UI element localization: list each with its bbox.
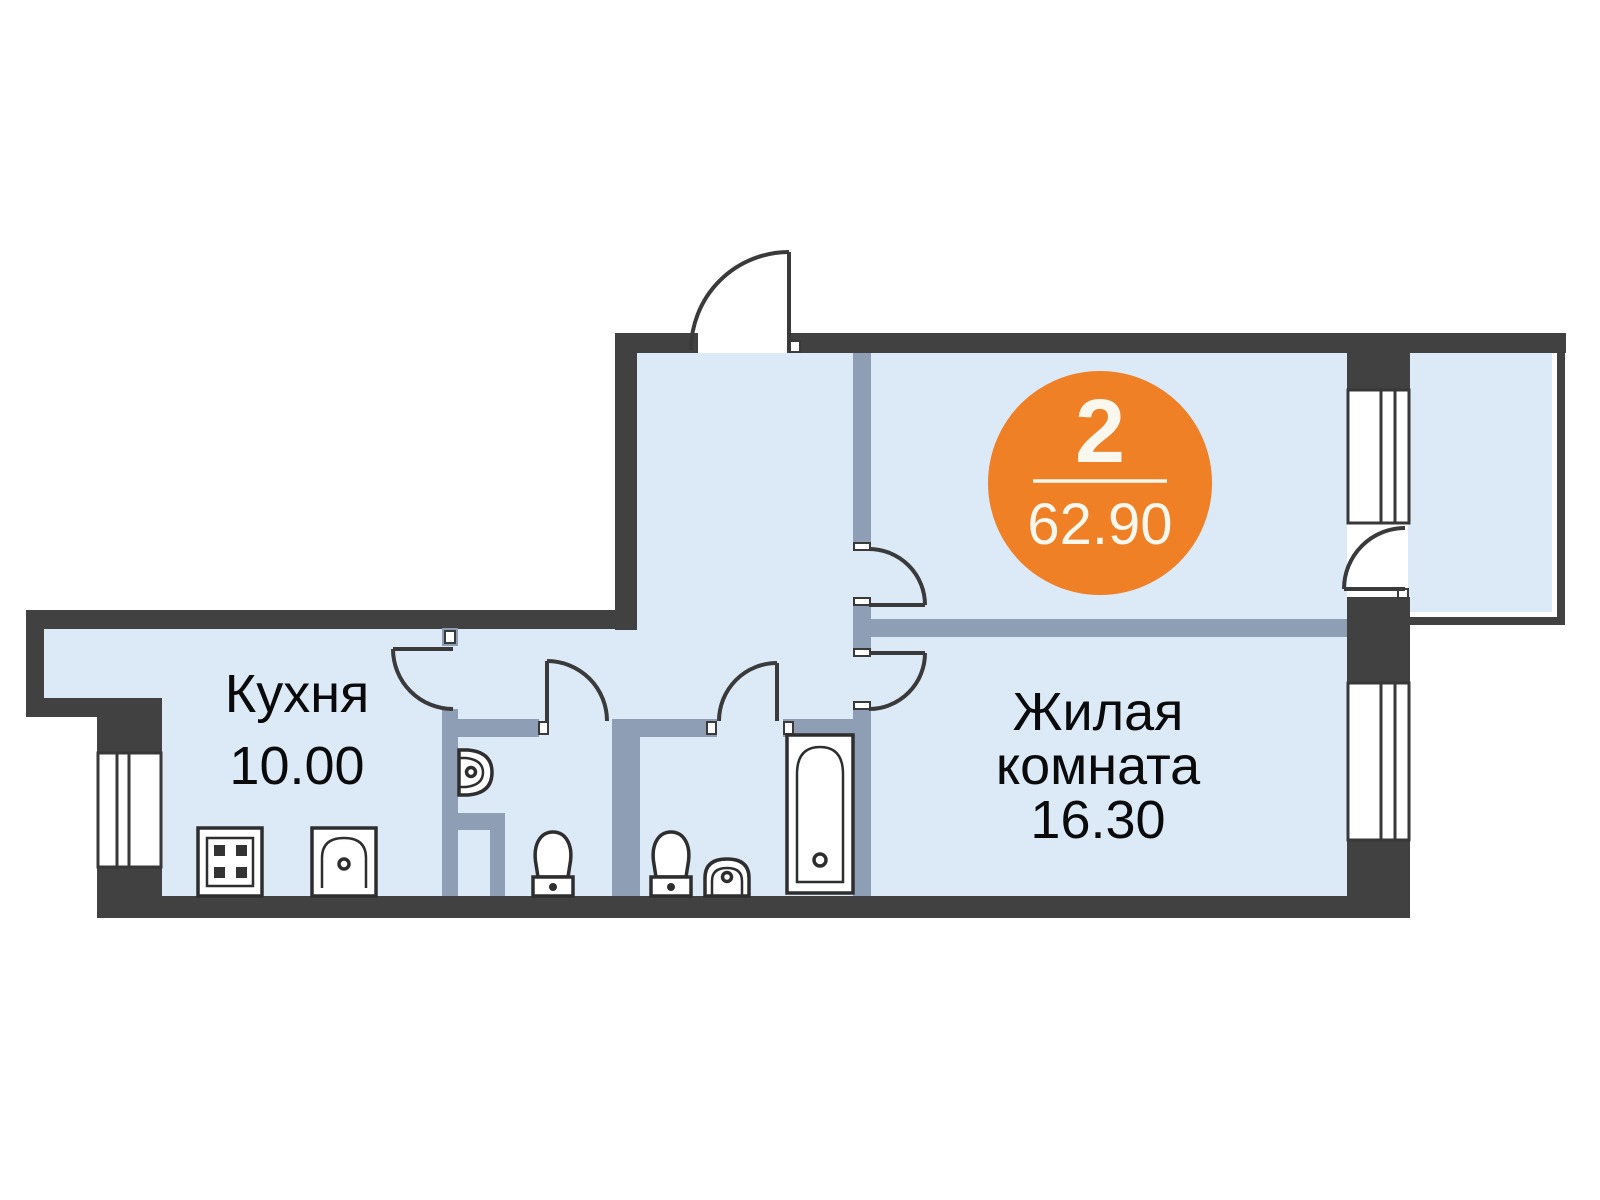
stove-icon [198, 828, 262, 896]
kitchen-right-partition [442, 709, 458, 896]
living-left-partition [853, 709, 871, 896]
living-door-tick-2 [854, 702, 870, 709]
kitchen-sink-icon [312, 828, 376, 896]
kitchen-step-wall [26, 698, 162, 717]
wall-sink-icon [459, 750, 492, 795]
balcony-window-icon [1348, 390, 1409, 523]
right-wall-pier-top [1347, 353, 1410, 390]
duct-wall-vertical [490, 830, 505, 896]
hall-room-partition-cap [853, 605, 871, 649]
floor-plan-page: Кухня 10.00 Жилая комната 16.30 2 62.90 [0, 0, 1600, 1200]
room-living-partition [871, 619, 1347, 637]
bath-sink-icon [705, 859, 749, 896]
kitchen-label: Кухня [225, 664, 370, 724]
living-room-area-label: 16.30 [1030, 790, 1165, 850]
hall-room-partition-upper [853, 353, 871, 543]
living-door-tick-1 [854, 649, 870, 656]
area-badge: 2 62.90 [988, 371, 1212, 595]
right-wall-pier-bottom [1347, 840, 1410, 918]
entry-jamb-tick [790, 341, 800, 352]
floor-plan: Кухня 10.00 Жилая комната 16.30 2 62.90 [0, 0, 1600, 1200]
bath2-jamb-tick-left [707, 722, 716, 734]
kitchen-jamb-tick [445, 631, 455, 643]
hall-left-wall [615, 333, 637, 630]
bath1-jamb-tick [539, 722, 548, 734]
living-room-label-line1: Жилая [1013, 682, 1184, 742]
badge-total-area: 62.90 [1027, 492, 1172, 557]
bathrooms-divider-wall [612, 719, 640, 896]
kitchen-window-icon [98, 753, 161, 867]
bath2-jamb-tick-right [784, 722, 793, 734]
living-room-label-line2: комната [996, 736, 1201, 796]
right-wall-pier-mid [1347, 597, 1410, 683]
toilet-icon [651, 832, 691, 896]
kitchen-area-label: 10.00 [229, 736, 364, 796]
entry-door-swing-icon [691, 252, 789, 350]
duct-wall-horizontal [458, 813, 505, 830]
left-window-wall-upper [97, 717, 162, 753]
living-window-icon [1348, 683, 1409, 840]
balcony-floor [1408, 353, 1552, 612]
badge-rooms-count: 2 [1075, 382, 1125, 482]
toilet-icon [533, 832, 573, 896]
bathtub-icon [787, 735, 853, 893]
balcony-door-swing-icon [1344, 528, 1405, 589]
room-door-tick-2 [854, 598, 870, 605]
room-door-tick-1 [854, 543, 870, 550]
kitchen-top-wall [26, 610, 637, 629]
top-wall-main-segment [787, 333, 1566, 353]
bath-top-wall-b [640, 719, 717, 737]
bottom-wall [97, 896, 1410, 918]
